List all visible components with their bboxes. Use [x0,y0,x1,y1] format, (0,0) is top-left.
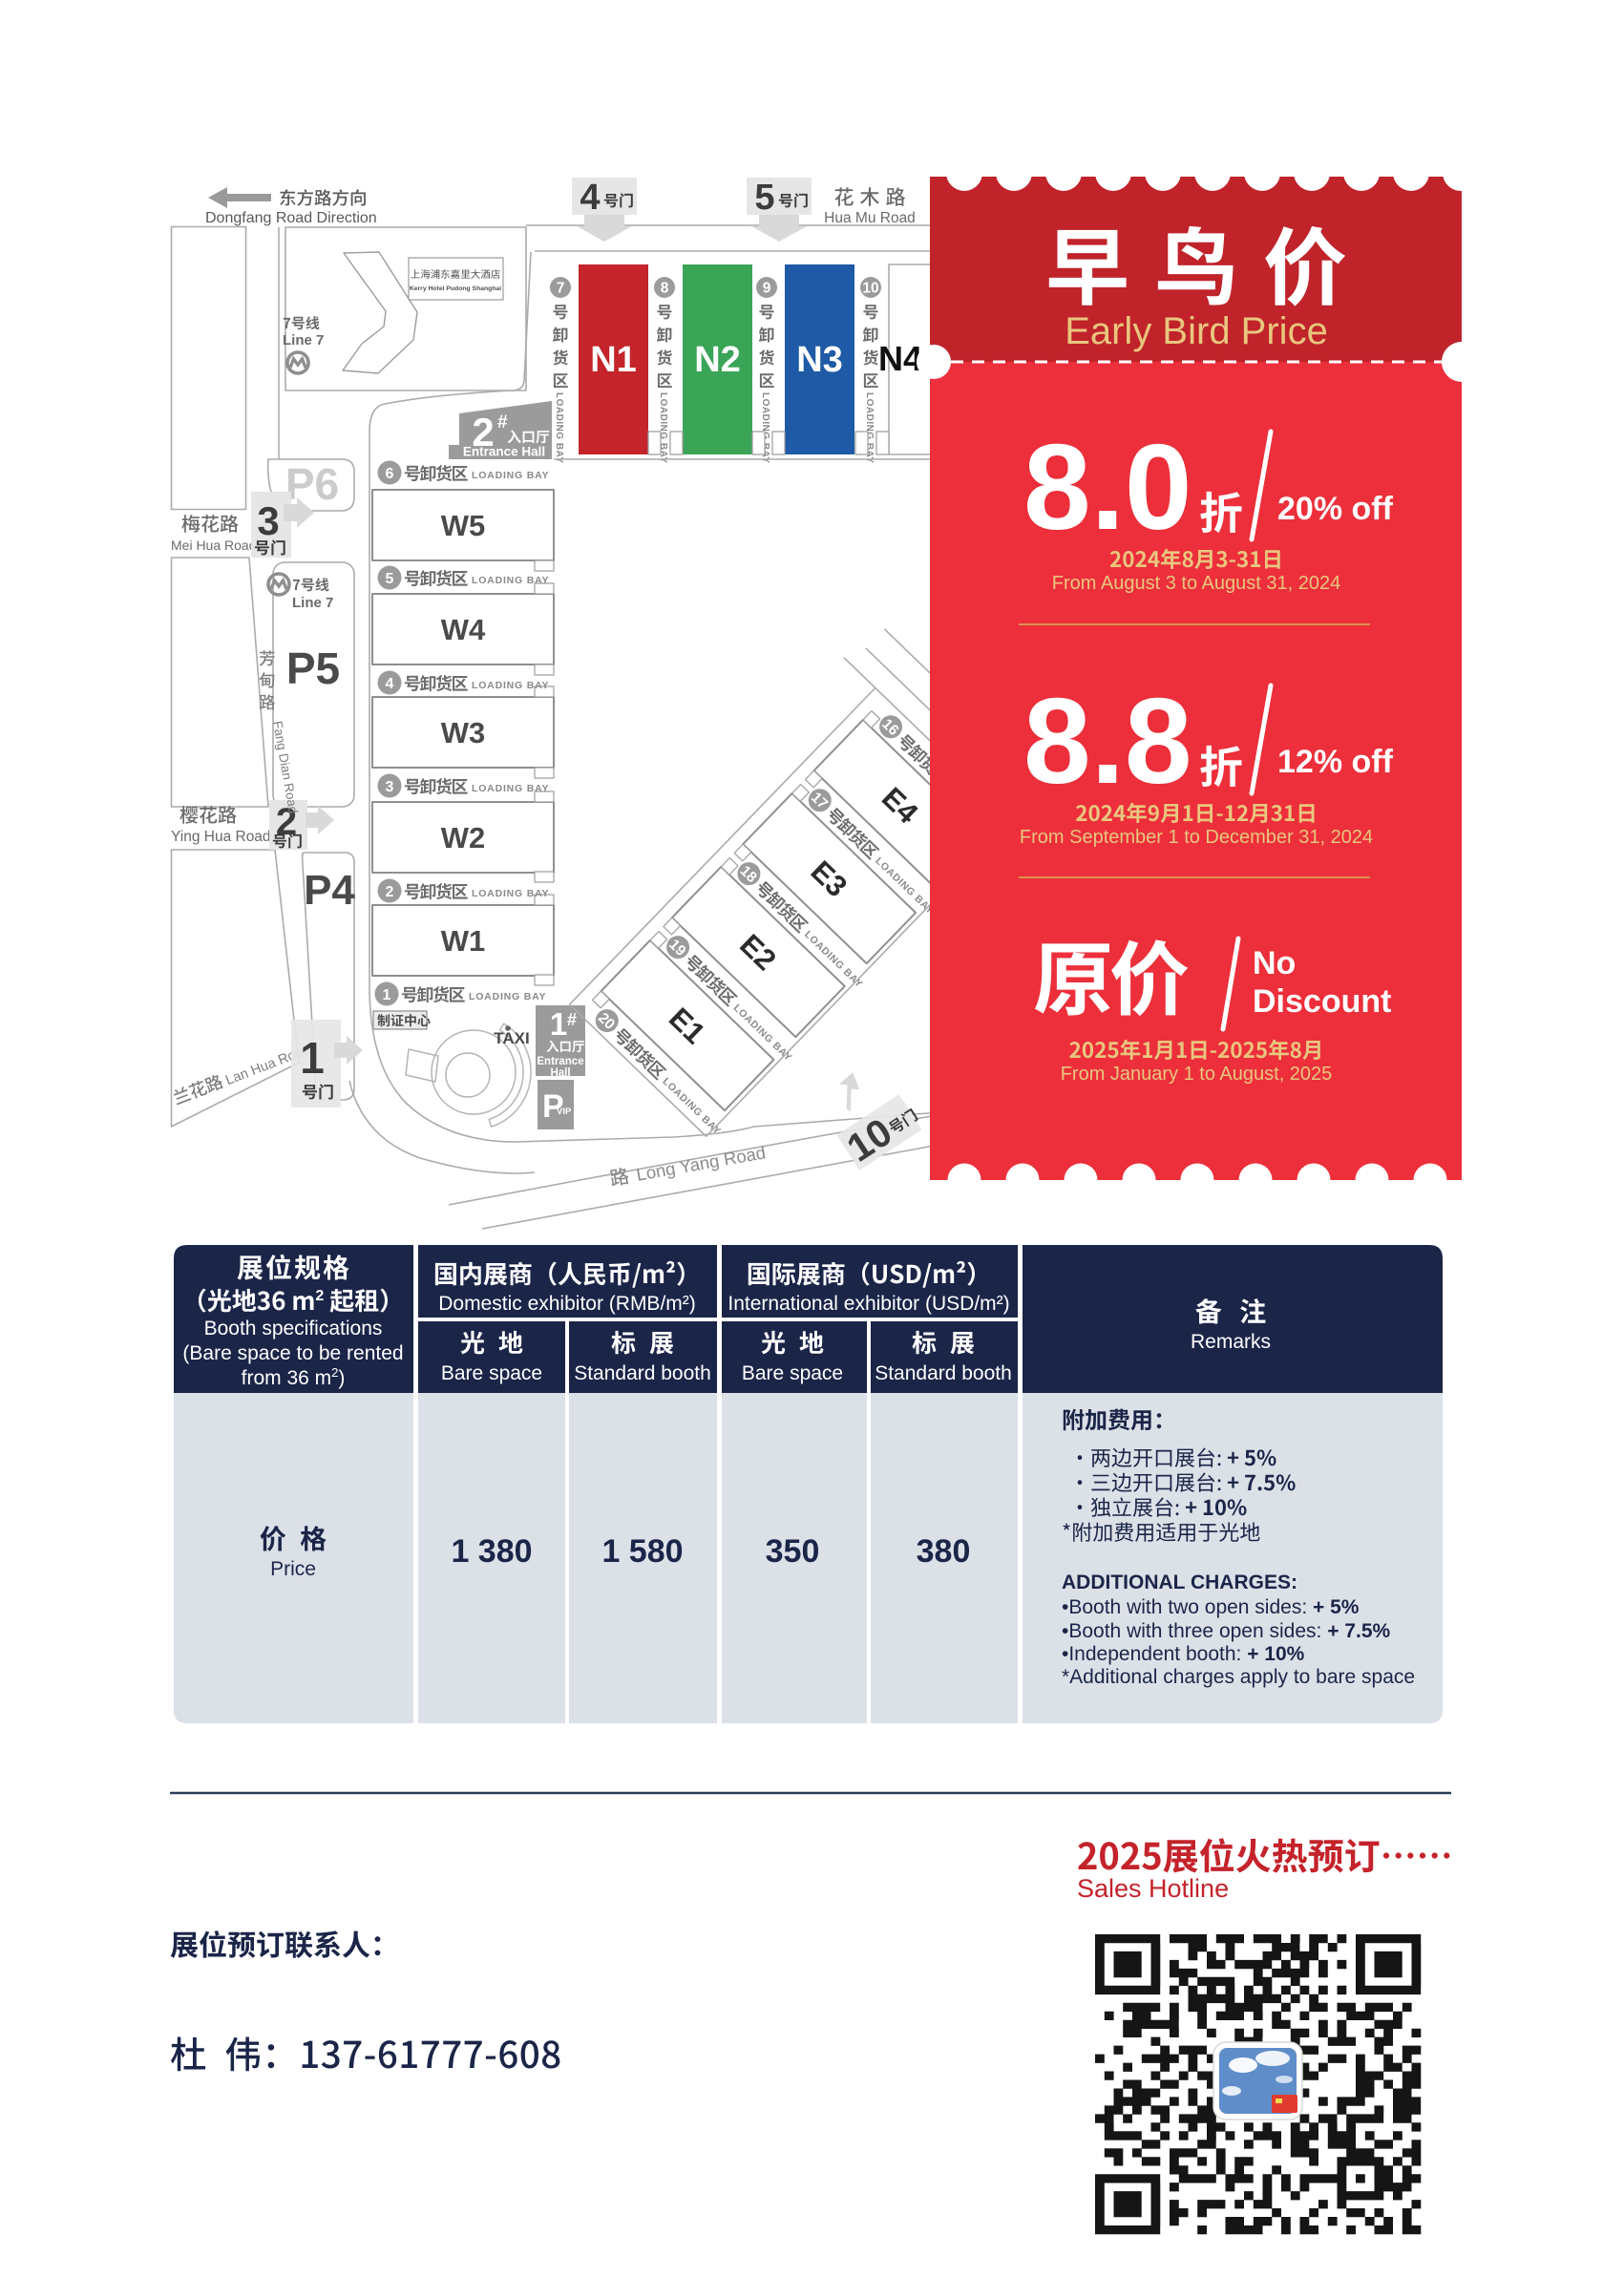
svg-text:LOADING BAY: LOADING BAY [472,575,549,586]
svg-text:Dongfang Road Direction: Dongfang Road Direction [205,210,377,226]
svg-text:4: 4 [580,178,600,218]
svg-text:12% off: 12% off [1277,744,1394,780]
svg-text:Standard booth: Standard booth [574,1362,711,1384]
svg-text:LOADING BAY: LOADING BAY [472,680,549,691]
svg-text:Remarks: Remarks [1191,1331,1271,1353]
svg-text:Price: Price [270,1558,316,1580]
svg-text:Hall: Hall [550,1067,570,1079]
svg-text:•Booth with two open sides: +: •Booth with two open sides: + 5% [1062,1596,1360,1618]
svg-text:Domestic exhibitor (RMB/m²): Domestic exhibitor (RMB/m²) [438,1293,696,1315]
svg-text:From January 1 to August, 2025: From January 1 to August, 2025 [1061,1064,1333,1085]
svg-text:From September 1 to December 3: From September 1 to December 31, 2024 [1020,827,1373,848]
svg-text:380: 380 [917,1533,971,1570]
svg-text:W2: W2 [441,821,486,854]
svg-text:5: 5 [386,571,394,587]
svg-text:Bare space: Bare space [441,1362,542,1384]
svg-text:Line 7: Line 7 [292,595,333,611]
svg-text:N3: N3 [796,340,843,380]
svg-text:International exhibitor (USD/m: International exhibitor (USD/m²) [728,1293,1009,1315]
svg-text:): ) [338,1367,345,1389]
svg-text:Entrance Hall: Entrance Hall [463,445,545,459]
svg-text:*Additional charges apply to b: *Additional charges apply to bare space [1062,1666,1415,1688]
svg-text:Early Bird Price: Early Bird Price [1065,310,1328,352]
svg-text:P6: P6 [285,459,339,509]
svg-text:•Independent booth: + 10%: •Independent booth: + 10% [1062,1643,1305,1665]
svg-text:N2: N2 [694,340,741,380]
svg-text:W1: W1 [441,924,486,958]
svg-text:LOADING BAY: LOADING BAY [469,991,546,1002]
svg-text:Bare space: Bare space [742,1362,843,1384]
svg-text:No: No [1253,945,1296,981]
svg-text:•Booth with three open sides:: •Booth with three open sides: + 7.5% [1062,1620,1390,1642]
svg-text:N1: N1 [590,340,637,380]
svg-text:8.0: 8.0 [1023,419,1192,555]
svg-text:Discount: Discount [1253,983,1391,1020]
svg-text:4: 4 [386,676,394,692]
svg-text:1: 1 [550,1006,567,1042]
svg-text:Ying Hua Road: Ying Hua Road [171,829,271,845]
svg-text:N4: N4 [878,339,922,378]
svg-text:3: 3 [386,779,394,795]
svg-text:5: 5 [754,178,774,218]
svg-text:Entrance: Entrance [537,1056,583,1067]
svg-text:20% off: 20% off [1277,491,1394,527]
svg-text:3: 3 [257,498,279,543]
svg-text:P4: P4 [304,867,355,914]
svg-text:Kerry Hotel Pudong Shanghai: Kerry Hotel Pudong Shanghai [410,285,501,292]
svg-text:7: 7 [557,281,565,297]
svg-text:#: # [567,1010,577,1029]
svg-text:2: 2 [386,884,394,900]
svg-text:P5: P5 [286,643,340,693]
svg-text:8: 8 [661,281,669,297]
svg-text:ADDITIONAL CHARGES:: ADDITIONAL CHARGES: [1062,1571,1297,1593]
svg-text:10: 10 [862,281,878,297]
svg-text:W3: W3 [441,716,486,749]
svg-text:from 36 m: from 36 m [242,1367,332,1389]
svg-text:8.8: 8.8 [1023,673,1192,809]
svg-text:1 580: 1 580 [601,1533,683,1570]
svg-text:Sales Hotline: Sales Hotline [1077,1874,1229,1903]
svg-text:W5: W5 [441,509,486,542]
svg-text:Line 7: Line 7 [283,332,324,348]
svg-text:6: 6 [386,466,394,482]
svg-text:1: 1 [300,1033,325,1083]
svg-text:350: 350 [766,1533,820,1570]
svg-text:#: # [497,412,508,432]
svg-text:Booth specifications: Booth specifications [204,1318,383,1339]
svg-text:Standard booth: Standard booth [875,1362,1012,1384]
svg-text:(Bare space to be rented: (Bare space to be rented [182,1342,403,1364]
svg-text:LOADING BAY: LOADING BAY [472,470,549,481]
svg-text:VIP: VIP [557,1107,572,1117]
svg-text:1 380: 1 380 [451,1533,532,1570]
svg-text:W4: W4 [441,613,486,646]
svg-text:2: 2 [315,1288,324,1304]
svg-text:LOADING BAY: LOADING BAY [554,392,564,464]
svg-text:1: 1 [383,987,391,1003]
svg-text:2: 2 [331,1365,338,1380]
svg-text:From August 3 to August 31, 20: From August 3 to August 31, 2024 [1052,573,1340,594]
svg-text:LOADING BAY: LOADING BAY [472,888,549,899]
svg-text:Hua Mu Road: Hua Mu Road [824,210,916,226]
svg-text:TAXI: TAXI [494,1029,529,1047]
svg-text:Mei Hua Road: Mei Hua Road [171,538,257,553]
svg-text:9: 9 [763,281,771,297]
svg-text:LOADING BAY: LOADING BAY [472,783,549,794]
